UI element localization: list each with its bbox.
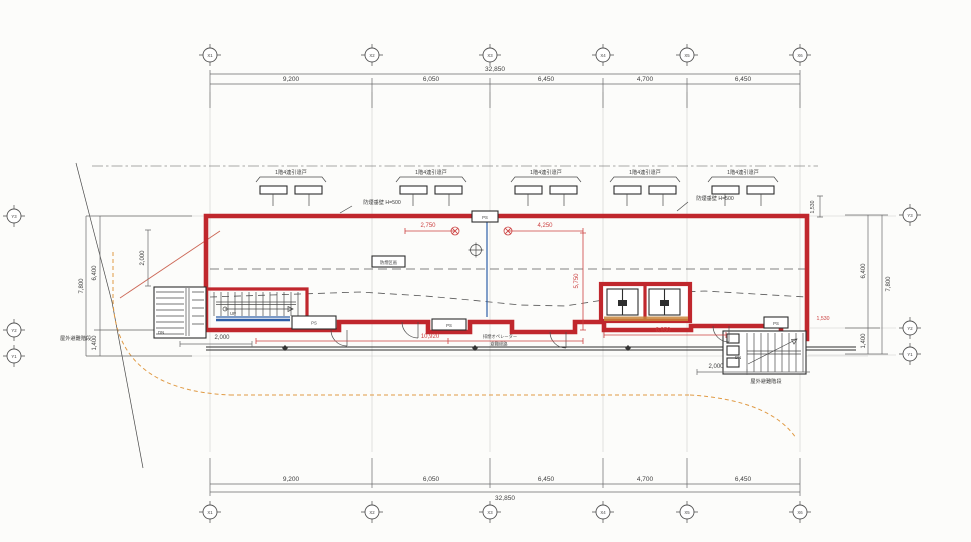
grid-bubbles-left: Y3 Y2 Y1 <box>3 205 25 367</box>
dim-label: 6,050 <box>423 76 440 83</box>
grid-bubble-label: X2 <box>369 53 375 58</box>
grid-bubble-label: Y3 <box>907 213 913 218</box>
elevator-car <box>607 289 638 315</box>
escape-stair-west: DN <box>154 287 206 338</box>
window-assembly-label: 1階4連引違戸 <box>727 168 759 176</box>
stair-direction-label: DN <box>158 330 164 335</box>
stair-direction-label: UP <box>230 311 236 316</box>
grid-bubble-label: X4 <box>600 53 606 58</box>
stair-direction-label: DN <box>735 355 741 360</box>
dimension-chain-top: 9,200 6,050 6,450 4,700 6,450 32,850 <box>210 66 800 108</box>
door-swing <box>402 322 418 338</box>
black-dim-label: 2,000 <box>140 250 146 266</box>
window-assembly-label: 1階4連引違戸 <box>530 168 562 176</box>
annotations: 防煙垂壁 H=500 防煙垂壁 H=500 2,750 4,250 5,750 … <box>60 194 830 375</box>
grid-bubble-label: X3 <box>487 53 493 58</box>
window-assembly-label: 1階4連引違戸 <box>275 168 307 176</box>
window-assembly: 1階4連引違戸 <box>396 168 466 206</box>
window-assembly: 1階4連引違戸 <box>256 168 326 206</box>
grid-bubble-label: Y2 <box>907 326 913 331</box>
storefront-and-shafts: PS PS PS PS <box>216 211 788 330</box>
escape-stair-label: 屋外避難階段 <box>60 334 91 342</box>
black-dim-label: 2,000 <box>214 335 230 341</box>
escape-route-label: 避難経路 <box>490 341 508 348</box>
dim-label: 4,700 <box>637 76 654 83</box>
door-swing <box>550 332 566 348</box>
smoke-operator-label: 排煙オペレーター <box>483 333 517 340</box>
dim-label: 6,450 <box>538 76 555 83</box>
dim-label: 6,450 <box>735 76 752 83</box>
window-assembly: 1階4連引違戸 <box>511 168 581 206</box>
dim-label: 1,400 <box>861 333 867 349</box>
door-swing <box>331 330 347 346</box>
window-assembly-label: 1階4連引違戸 <box>629 168 661 176</box>
black-dim-label: 2,000 <box>708 364 724 370</box>
grid-bubble-label: Y1 <box>11 354 17 359</box>
column-symbol <box>469 243 484 258</box>
dim-label: 6,450 <box>538 476 555 483</box>
red-dim-label: 5,750 <box>574 273 580 289</box>
dim-lines-right <box>845 215 888 354</box>
dim-label: 6,450 <box>735 476 752 483</box>
smoke-zone-label: 防煙区画 <box>380 259 397 266</box>
elevator-car <box>649 289 680 315</box>
grid-bubble-label: X1 <box>207 510 213 515</box>
grid-bubble-label: Y2 <box>11 328 17 333</box>
elevator-shaft <box>601 284 690 321</box>
dimension-chain-bottom: 9,200 6,050 6,450 4,700 6,450 32,850 <box>210 458 800 502</box>
grid-bubble-label: X5 <box>684 53 690 58</box>
grid-bubble-label: X1 <box>207 53 213 58</box>
grid-bubble-label: X6 <box>797 53 803 58</box>
smoke-wall-note: 防煙垂壁 H=500 <box>696 194 734 202</box>
dim-total-label: 32,850 <box>485 66 505 73</box>
dim-label: 6,400 <box>861 263 867 279</box>
smoke-wall-note: 防煙垂壁 H=500 <box>363 198 401 206</box>
grid-bubble-label: Y1 <box>907 352 913 357</box>
grid-bubbles-right: Y3 Y2 Y1 <box>899 204 921 365</box>
dim-total-label: 32,850 <box>495 495 515 502</box>
dim-label: 1,400 <box>92 335 98 351</box>
red-dim-label: 6,950 <box>655 328 671 334</box>
dim-total-label: 7,800 <box>79 278 85 294</box>
ps-label: PS <box>773 321 779 326</box>
black-dim-label: 1,530 <box>810 200 816 213</box>
grid-bubbles-top: X1 X2 X3 X4 X5 X6 <box>199 44 811 66</box>
floor-plan-sheet: 9,200 6,050 6,450 4,700 6,450 32,850 X1 … <box>0 0 971 542</box>
escape-stair-east: DN 屋外避難階段 <box>723 331 806 385</box>
dim-label: 6,050 <box>423 476 440 483</box>
grid-bubble-label: X4 <box>600 510 606 515</box>
floor-plan-drawing: 9,200 6,050 6,450 4,700 6,450 32,850 X1 … <box>0 0 971 542</box>
red-dim-label: 2,750 <box>420 223 436 229</box>
grid-vertical-lines <box>210 92 800 452</box>
window-assembly-label: 1階4連引違戸 <box>415 168 447 176</box>
ps-label: PS <box>482 215 488 220</box>
dim-label: 4,700 <box>637 476 654 483</box>
grid-bubble-label: X5 <box>684 510 690 515</box>
smoke-zone-tag: 防煙区画 <box>372 256 405 267</box>
plan-symbols: 防煙区画 <box>372 227 512 267</box>
grid-bubble-label: X6 <box>797 510 803 515</box>
grid-bubble-label: X3 <box>487 510 493 515</box>
grid-bubble-label: Y3 <box>11 214 17 219</box>
red-dim-label: 10,920 <box>421 334 440 340</box>
interior-stair: UP <box>214 292 298 316</box>
elevator-sill <box>604 317 688 322</box>
boundary-arc-southeast <box>690 395 796 438</box>
ps-label: PS <box>311 321 317 326</box>
red-dim-label: 1,530 <box>817 316 830 322</box>
dim-label: 9,200 <box>283 476 300 483</box>
red-dim-label: 4,250 <box>537 223 553 229</box>
eave-line <box>210 291 806 306</box>
dimension-chain-right: 6,400 1,400 7,800 <box>845 215 892 354</box>
window-assembly: 1階4連引違戸 <box>610 168 680 206</box>
grid-bubble-label: X2 <box>369 510 375 515</box>
ps-label: PS <box>446 323 452 328</box>
dim-label: 6,400 <box>92 265 98 281</box>
dim-total-label: 7,800 <box>886 276 892 292</box>
escape-stair-label: 屋外避難階段 <box>750 377 781 385</box>
dim-label: 9,200 <box>283 76 300 83</box>
grid-bubbles-bottom: X1 X2 X3 X4 X5 X6 <box>199 501 811 523</box>
